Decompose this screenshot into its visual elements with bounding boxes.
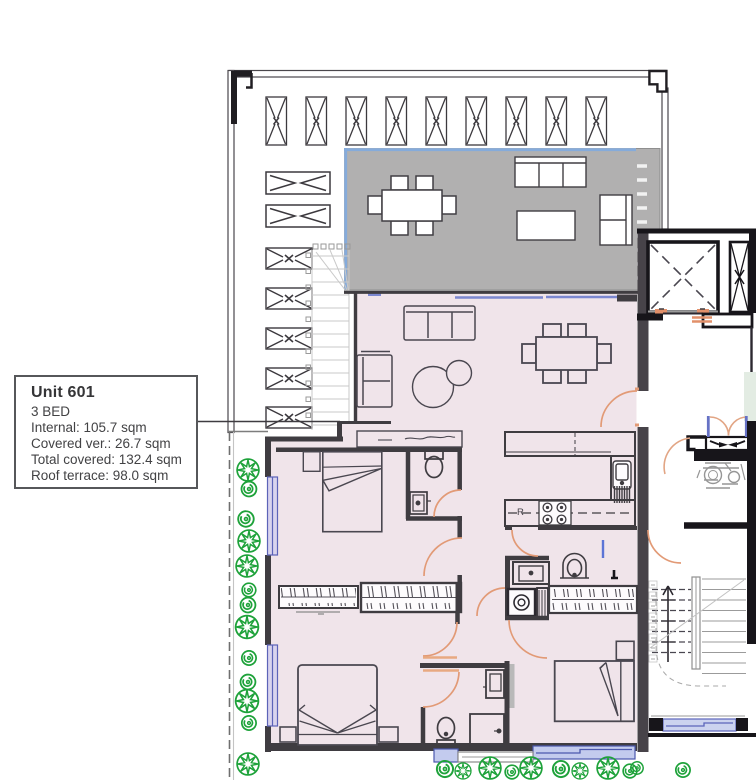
svg-text:R: R <box>517 507 524 518</box>
